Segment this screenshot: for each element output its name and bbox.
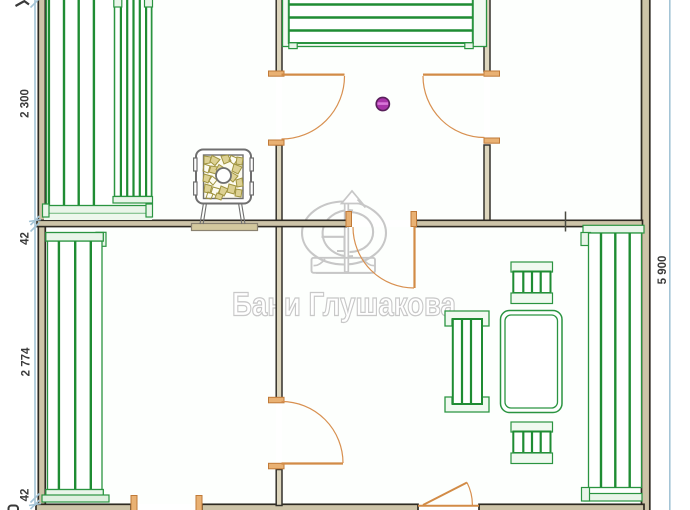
svg-text:2 774: 2 774 — [21, 347, 33, 376]
svg-text:Бани Глушакова: Бани Глушакова — [232, 286, 457, 323]
svg-text:5 900: 5 900 — [657, 256, 669, 285]
svg-text:42: 42 — [20, 232, 32, 245]
svg-text:42: 42 — [20, 489, 32, 502]
svg-text:2 300: 2 300 — [20, 89, 32, 118]
